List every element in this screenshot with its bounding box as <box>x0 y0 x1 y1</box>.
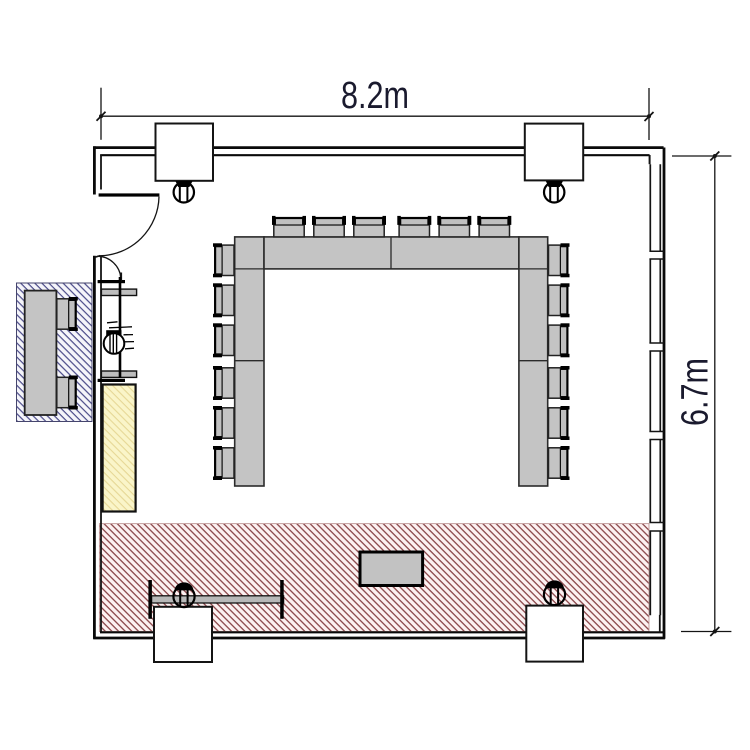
svg-text:8.2m: 8.2m <box>341 74 409 117</box>
svg-text:6.7m: 6.7m <box>674 358 717 426</box>
